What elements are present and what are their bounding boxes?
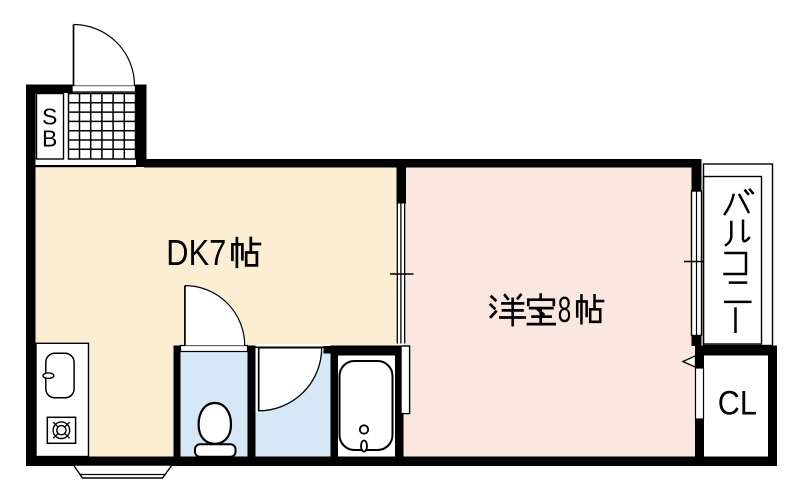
svg-text:8: 8	[558, 289, 572, 330]
svg-text:B: B	[42, 125, 57, 151]
svg-text:CL: CL	[718, 384, 757, 422]
svg-text:DK7: DK7	[166, 232, 226, 273]
